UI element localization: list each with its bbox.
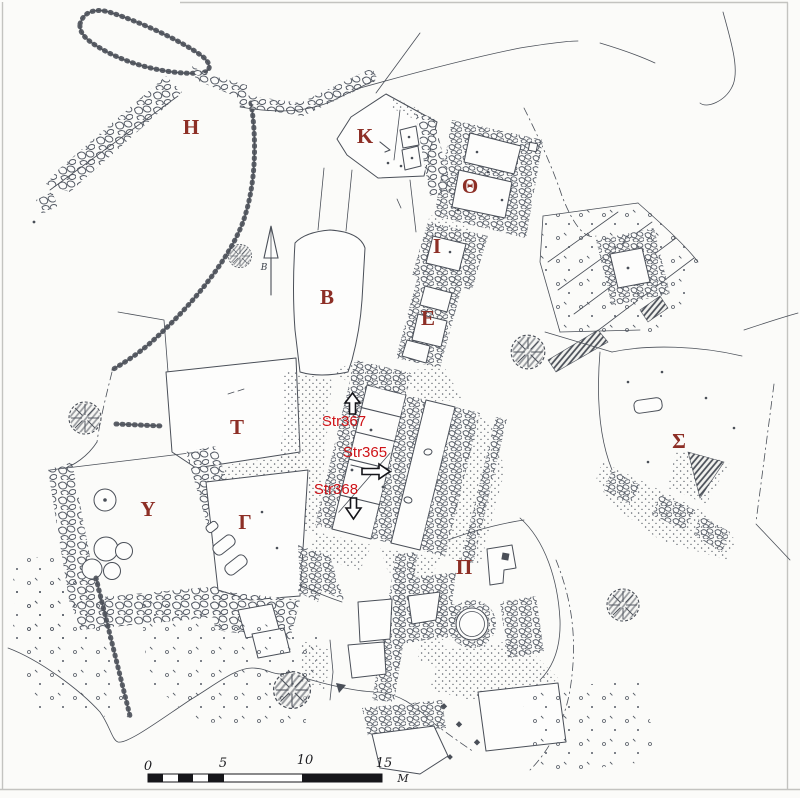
scale-unit: M — [396, 772, 409, 785]
area-label-epsilon: E — [421, 306, 435, 330]
tree-icon — [511, 335, 545, 369]
theta-complex — [415, 112, 543, 242]
tree-icon — [69, 402, 101, 434]
area-label-theta: Θ — [462, 174, 478, 198]
tree-icon — [607, 589, 639, 621]
annotation-label: Str365 — [343, 444, 387, 461]
annotation-label: Str367 — [322, 413, 366, 430]
area-label-pi: Π — [456, 555, 472, 579]
site-plan-drawing: B H K Θ I B E T Σ Y Γ Π Str367 Str365 St… — [0, 0, 800, 798]
sigma-area — [545, 332, 790, 560]
wall-band-h — [33, 66, 250, 223]
tree-icon — [274, 672, 311, 709]
scale-segment — [208, 774, 224, 782]
storage-circles — [82, 489, 133, 580]
area-label-upsilon: Y — [140, 497, 155, 521]
scale-segment — [178, 774, 193, 782]
scale-segment — [302, 774, 382, 782]
scale-tick-5: 5 — [219, 756, 227, 771]
tree-icon — [228, 244, 251, 267]
annotation-label: Str368 — [314, 481, 358, 498]
scale-segment — [148, 774, 163, 782]
area-t-enclosure — [166, 358, 300, 468]
scale-bar: 0 5 10 15 M — [144, 753, 410, 785]
area-label-tau: T — [230, 415, 244, 439]
north-arrow: B — [260, 226, 278, 295]
scale-tick-0: 0 — [144, 759, 152, 774]
area-label-kappa: K — [357, 124, 374, 148]
area-label-gamma: Γ — [238, 510, 251, 534]
scale-tick-15: 15 — [376, 756, 393, 771]
hill-outline — [80, 11, 209, 74]
field-strips — [540, 202, 700, 372]
diamond-marks — [441, 703, 480, 760]
area-label-sigma: Σ — [672, 429, 686, 453]
area-label-iota: I — [433, 234, 441, 258]
area-label-beta: B — [320, 285, 334, 309]
scale-tick-10: 10 — [297, 753, 314, 768]
site-plan-page: B H K Θ I B E T Σ Y Γ Π Str367 Str365 St… — [0, 0, 800, 798]
area-label-eta: H — [183, 115, 199, 139]
north-arrow-label: B — [260, 263, 268, 273]
wall-band-north — [238, 68, 378, 116]
